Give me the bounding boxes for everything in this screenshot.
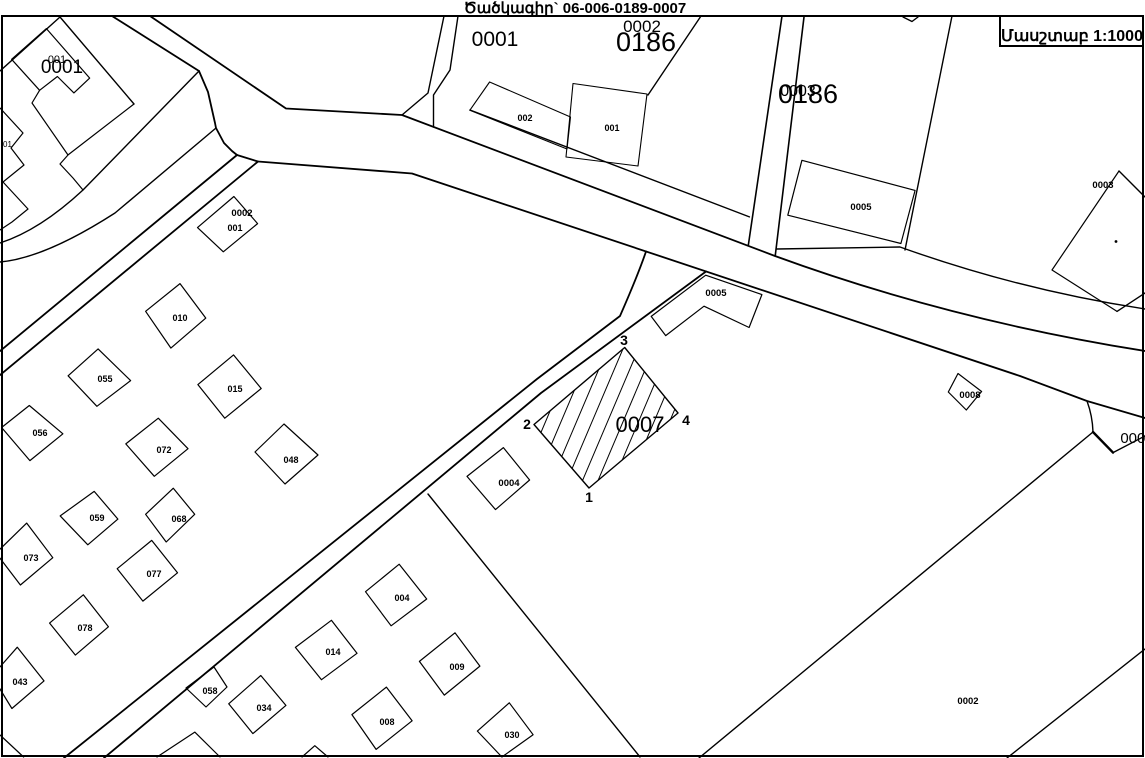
svg-text:059: 059 bbox=[89, 513, 104, 523]
svg-text:3: 3 bbox=[620, 332, 628, 348]
svg-text:043: 043 bbox=[12, 677, 27, 687]
svg-text:0186: 0186 bbox=[616, 27, 676, 57]
svg-text:0003: 0003 bbox=[1092, 180, 1113, 191]
svg-text:0186: 0186 bbox=[778, 79, 838, 109]
svg-text:01: 01 bbox=[3, 140, 12, 149]
svg-text:Մասշտաբ 1:1000: Մասշտաբ 1:1000 bbox=[1001, 28, 1143, 45]
svg-text:0004: 0004 bbox=[498, 478, 520, 489]
svg-text:1: 1 bbox=[585, 489, 593, 505]
svg-text:058: 058 bbox=[202, 686, 217, 696]
svg-text:0002: 0002 bbox=[231, 208, 252, 219]
svg-text:001: 001 bbox=[604, 123, 619, 133]
svg-text:4: 4 bbox=[682, 412, 690, 428]
svg-text:056: 056 bbox=[32, 428, 47, 438]
svg-text:034: 034 bbox=[256, 703, 271, 713]
svg-text:048: 048 bbox=[283, 455, 298, 465]
svg-text:0006: 0006 bbox=[1120, 430, 1145, 447]
svg-text:010: 010 bbox=[172, 313, 187, 323]
svg-text:0001: 0001 bbox=[41, 57, 83, 78]
svg-text:008: 008 bbox=[379, 717, 394, 727]
svg-text:073: 073 bbox=[23, 553, 38, 563]
svg-text:0005: 0005 bbox=[850, 202, 872, 213]
svg-text:0007: 0007 bbox=[616, 412, 665, 437]
svg-text:002: 002 bbox=[517, 113, 532, 123]
svg-text:0008: 0008 bbox=[959, 390, 980, 401]
svg-text:015: 015 bbox=[227, 384, 242, 394]
svg-text:004: 004 bbox=[394, 593, 409, 603]
svg-text:001: 001 bbox=[227, 223, 242, 233]
svg-text:055: 055 bbox=[97, 374, 112, 384]
svg-text:2: 2 bbox=[523, 416, 531, 432]
svg-text:068: 068 bbox=[171, 514, 186, 524]
svg-text:014: 014 bbox=[325, 647, 340, 657]
svg-text:030: 030 bbox=[504, 730, 519, 740]
svg-text:077: 077 bbox=[146, 569, 161, 579]
svg-text:0002: 0002 bbox=[957, 696, 978, 707]
svg-text:Ծածկագիր` 06-006-0189-0007: Ծածկագիր` 06-006-0189-0007 bbox=[464, 0, 687, 17]
svg-text:072: 072 bbox=[156, 445, 171, 455]
svg-text:0005: 0005 bbox=[705, 288, 727, 299]
svg-text:009: 009 bbox=[449, 662, 464, 672]
svg-text:078: 078 bbox=[77, 623, 92, 633]
svg-text:0001: 0001 bbox=[472, 28, 519, 51]
